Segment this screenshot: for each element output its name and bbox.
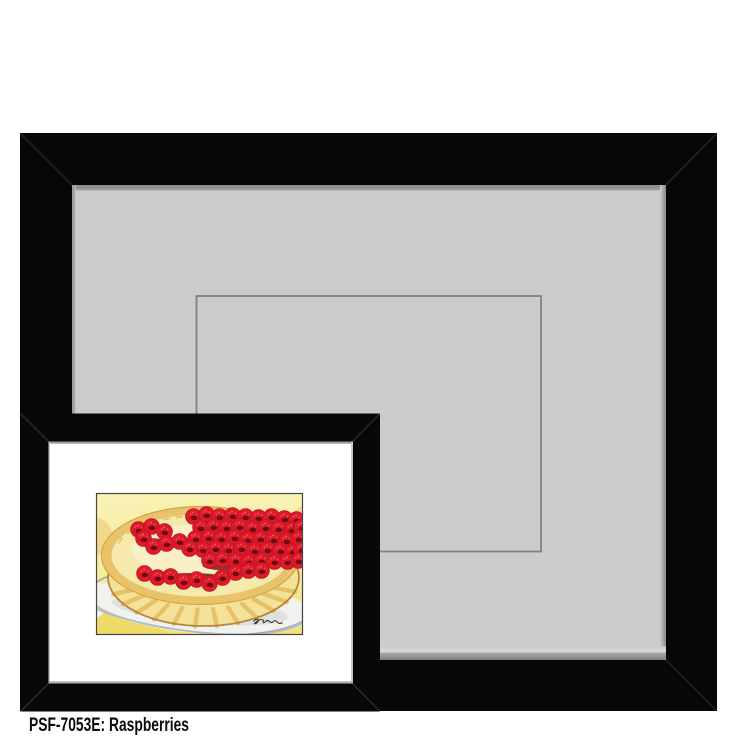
svg-text:PSF-7053E: Raspberries: PSF-7053E: Raspberries xyxy=(29,715,189,736)
